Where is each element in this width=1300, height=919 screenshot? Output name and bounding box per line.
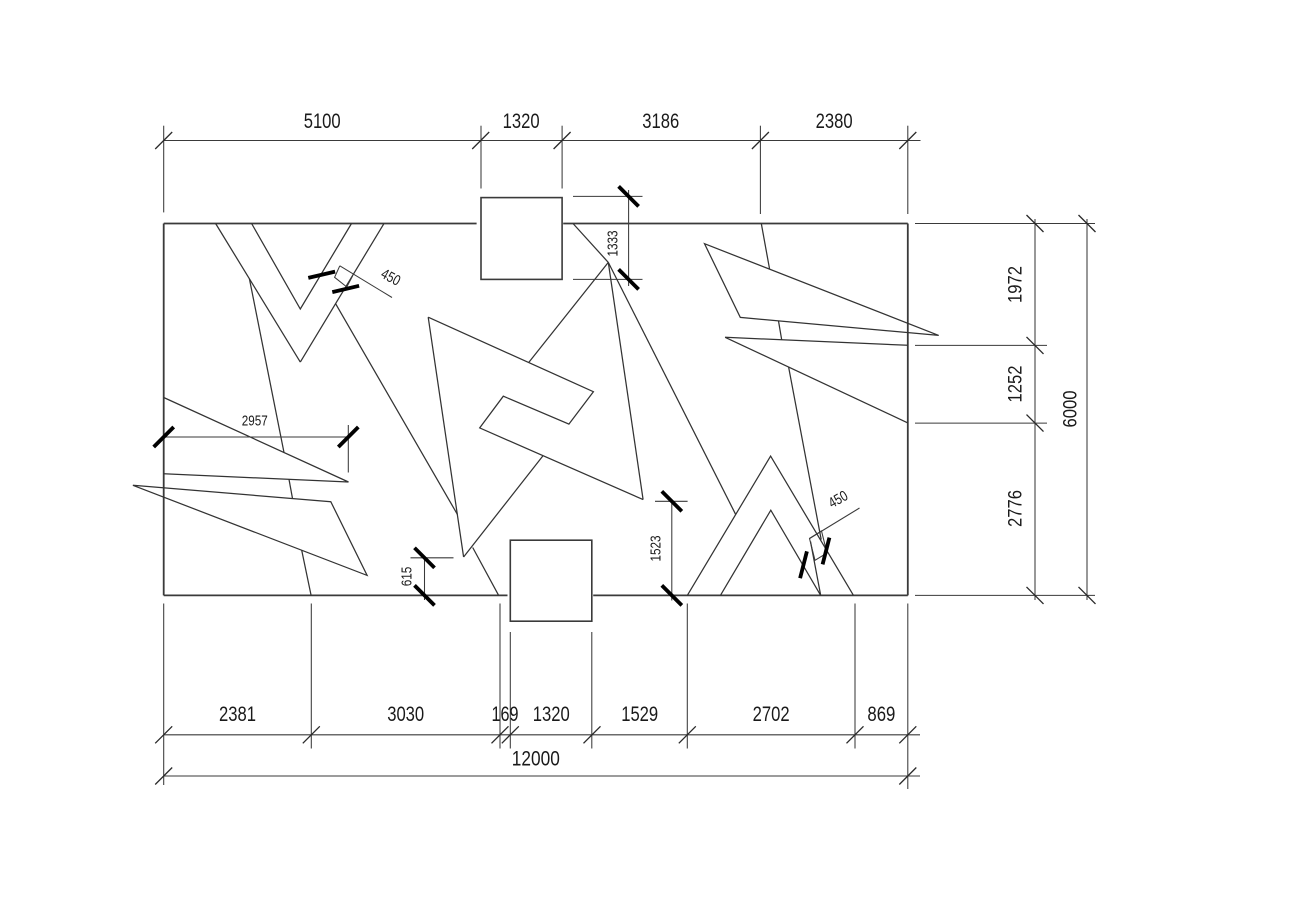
svg-text:2702: 2702 — [753, 702, 790, 726]
svg-text:1333: 1333 — [605, 231, 621, 257]
svg-text:1529: 1529 — [621, 702, 658, 726]
svg-text:1320: 1320 — [533, 702, 570, 726]
svg-text:1320: 1320 — [503, 109, 540, 133]
svg-text:169: 169 — [492, 702, 519, 726]
svg-text:2381: 2381 — [219, 702, 256, 726]
svg-text:1523: 1523 — [649, 536, 665, 562]
svg-text:869: 869 — [867, 702, 895, 726]
svg-text:1972: 1972 — [1004, 266, 1026, 303]
svg-text:2957: 2957 — [242, 414, 268, 430]
svg-text:1252: 1252 — [1004, 366, 1026, 403]
svg-text:3030: 3030 — [387, 702, 424, 726]
svg-text:5100: 5100 — [304, 109, 341, 133]
svg-text:615: 615 — [400, 567, 416, 587]
svg-text:12000: 12000 — [512, 747, 560, 771]
svg-text:6000: 6000 — [1060, 390, 1082, 427]
svg-text:2380: 2380 — [816, 109, 853, 133]
svg-text:3186: 3186 — [642, 109, 679, 133]
svg-text:2776: 2776 — [1004, 490, 1026, 527]
